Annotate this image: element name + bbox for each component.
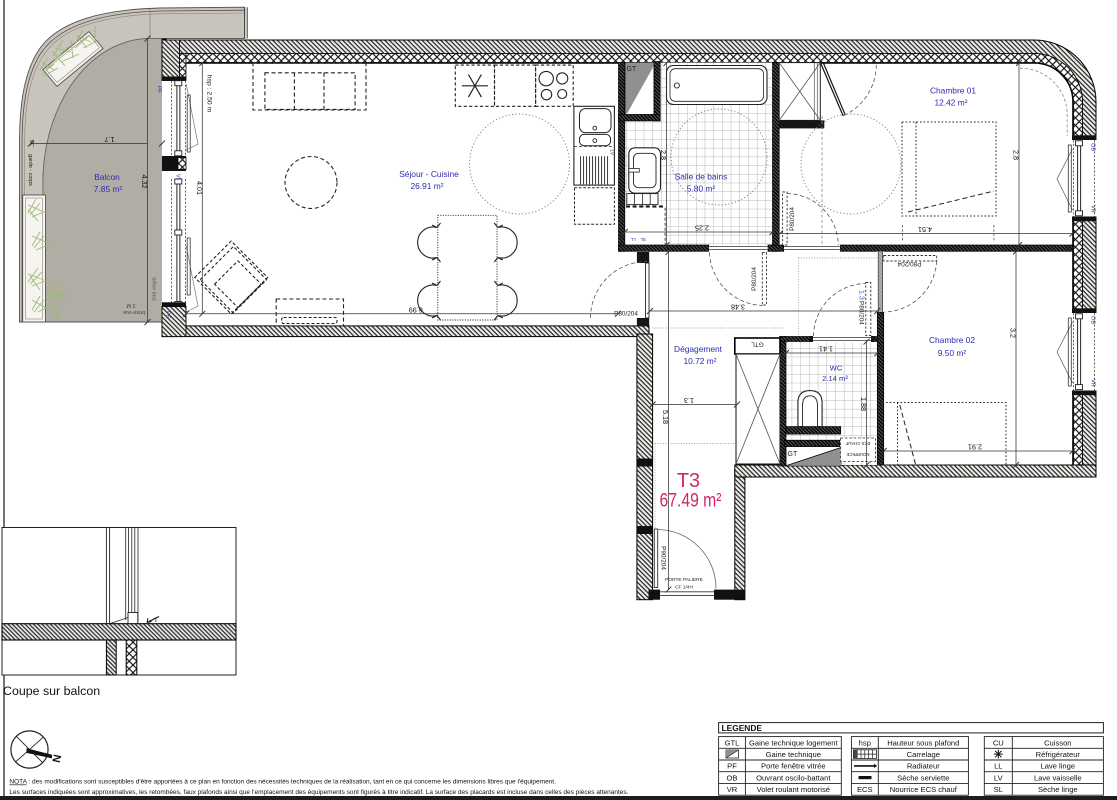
svg-text:Réfrigérateur: Réfrigérateur [1036, 750, 1081, 759]
svg-text:1.3: 1.3 [684, 396, 694, 405]
svg-text:2.14 m²: 2.14 m² [822, 374, 848, 383]
svg-text:NOURRICE: NOURRICE [846, 452, 869, 457]
svg-text:Coupe sur balcon: Coupe sur balcon [3, 684, 100, 698]
svg-text:1.7: 1.7 [105, 135, 115, 144]
svg-text:Nourrice ECS chauf: Nourrice ECS chauf [890, 785, 958, 794]
svg-text:LEGENDE: LEGENDE [722, 723, 763, 733]
svg-text:P80/204: P80/204 [789, 207, 796, 231]
svg-text:Gaine technique logement: Gaine technique logement [749, 738, 839, 747]
svg-text:Ouvrant oscilo-battant: Ouvrant oscilo-battant [756, 773, 831, 782]
svg-text:2.25: 2.25 [695, 224, 709, 233]
svg-text:3.48: 3.48 [731, 303, 745, 312]
svg-text:Séjour - Cuisine: Séjour - Cuisine [399, 169, 459, 179]
svg-text:2.8: 2.8 [659, 150, 668, 160]
svg-text:2.8: 2.8 [1012, 150, 1021, 160]
svg-text:67.49 m²: 67.49 m² [660, 490, 722, 512]
svg-text:garde - corps: garde - corps [27, 154, 33, 186]
svg-text:Porte fenêtre vitrée: Porte fenêtre vitrée [761, 762, 826, 771]
svg-text:PF: PF [727, 762, 737, 771]
svg-text:hsp: hsp [859, 738, 871, 747]
svg-text:OB: OB [727, 773, 738, 782]
svg-text:Lave vaisselle: Lave vaisselle [1034, 773, 1082, 782]
svg-text:Cuisson: Cuisson [1044, 738, 1071, 747]
svg-text:2 M: 2 M [126, 302, 135, 308]
svg-text:GT: GT [788, 451, 798, 458]
svg-text:GTL: GTL [725, 738, 740, 747]
svg-text:Lave linge: Lave linge [1040, 762, 1075, 771]
svg-text:VR: VR [1090, 379, 1096, 387]
svg-text:9.50 m²: 9.50 m² [938, 348, 967, 358]
svg-text:CF 1/4H: CF 1/4H [675, 585, 693, 591]
svg-text:Gaine technique: Gaine technique [766, 750, 821, 759]
svg-text:hsp : 2.50 m: hsp : 2.50 m [206, 75, 213, 113]
svg-text:P90/204: P90/204 [660, 546, 667, 570]
svg-text:3.2: 3.2 [1009, 328, 1018, 338]
svg-text:1.88: 1.88 [859, 397, 868, 411]
svg-text:GTL: GTL [751, 341, 764, 348]
svg-text:NOTA : des modifications sont: NOTA : des modifications sont susceptibl… [9, 779, 556, 786]
svg-text:Sèche linge: Sèche linge [1038, 785, 1078, 794]
svg-text:Carrelage: Carrelage [907, 750, 940, 759]
svg-text:5.80 m²: 5.80 m² [687, 184, 716, 194]
svg-text:LV: LV [994, 773, 1004, 782]
svg-text:SL: SL [994, 785, 1003, 794]
svg-text:Sèche serviette: Sèche serviette [897, 773, 949, 782]
svg-text:VR: VR [727, 785, 738, 794]
svg-text:CU: CU [993, 738, 1004, 747]
svg-text:P80/204: P80/204 [751, 267, 758, 291]
svg-text:Hauteur sous plafond: Hauteur sous plafond [887, 738, 959, 747]
svg-text:PORTE PALIERE: PORTE PALIERE [665, 577, 703, 583]
svg-text:5.18: 5.18 [661, 410, 670, 424]
svg-text:OB: OB [1090, 143, 1096, 151]
svg-text:béton brut: béton brut [151, 277, 157, 301]
svg-text:LL: LL [994, 762, 1002, 771]
svg-text:.35: .35 [30, 139, 36, 147]
svg-text:4.51: 4.51 [918, 225, 932, 234]
svg-text:LV: LV [609, 150, 615, 156]
svg-text:Salle de bains: Salle de bains [675, 172, 728, 182]
svg-text:7.85 m²: 7.85 m² [94, 184, 123, 194]
svg-text:Chambre 02: Chambre 02 [929, 335, 975, 345]
svg-text:PF: PF [165, 311, 171, 319]
svg-text:Dégagement: Dégagement [674, 344, 723, 354]
svg-text:LL: LL [630, 237, 636, 242]
svg-text:Radiateur: Radiateur [907, 762, 940, 771]
svg-text:P80/204: P80/204 [858, 301, 865, 325]
svg-text:Balcon: Balcon [94, 172, 120, 182]
svg-text:10.72 m²: 10.72 m² [683, 356, 716, 366]
svg-text:PF: PF [156, 86, 162, 94]
svg-text:GT: GT [627, 66, 637, 73]
svg-text:P80/204: P80/204 [897, 260, 921, 267]
svg-text:12.42 m²: 12.42 m² [934, 98, 967, 108]
svg-text:1.41: 1.41 [819, 345, 833, 354]
svg-text:Les surfaces indiquées sont ap: Les surfaces indiquées sont approximativ… [9, 789, 628, 796]
svg-text:SL: SL [640, 237, 646, 242]
svg-text:2.91: 2.91 [968, 443, 982, 452]
svg-text:WC: WC [830, 364, 843, 373]
svg-text:4.01: 4.01 [195, 181, 204, 195]
svg-text:4.32: 4.32 [140, 175, 149, 189]
svg-text:ECS: ECS [857, 785, 873, 794]
svg-text:Volet roulant motorisé: Volet roulant motorisé [757, 785, 830, 794]
svg-text:1.3: 1.3 [858, 290, 865, 300]
svg-text:Chambre 01: Chambre 01 [930, 86, 976, 96]
svg-text:26.91 m²: 26.91 m² [410, 181, 443, 191]
svg-text:VR: VR [1090, 205, 1096, 213]
svg-text:6.99: 6.99 [409, 305, 423, 314]
svg-text:brise-vue: brise-vue [123, 309, 145, 315]
svg-text:OB: OB [1090, 316, 1096, 324]
